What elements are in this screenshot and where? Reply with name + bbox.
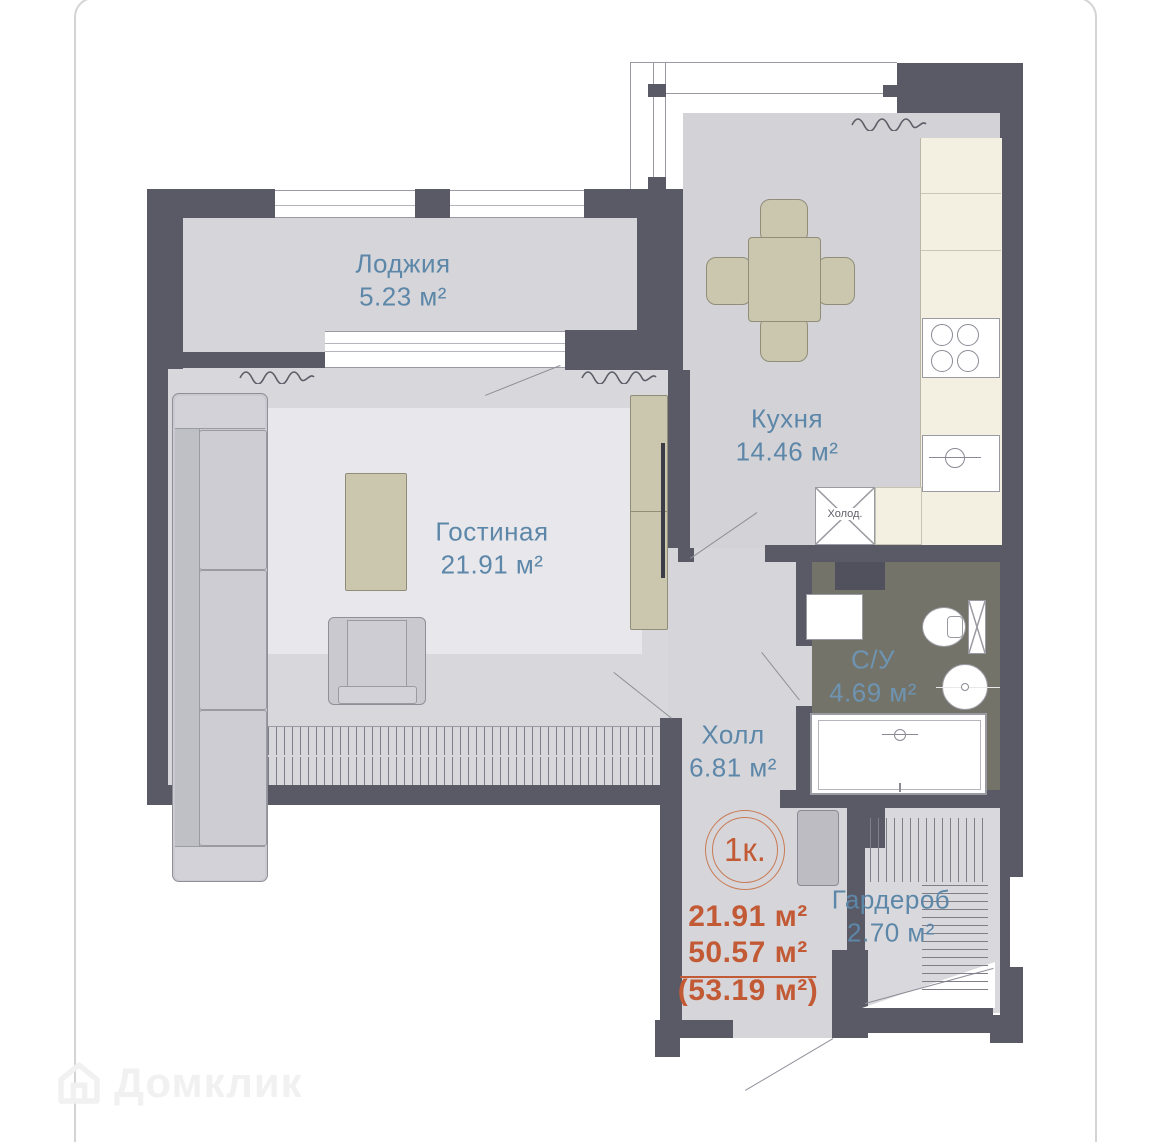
balcony-post [648, 84, 666, 97]
fridge: Холод. [815, 487, 875, 545]
wall-loggia-step [565, 330, 637, 370]
room-name: Гардероб [832, 884, 950, 917]
room-label-kitchen: Кухня 14.46 м² [736, 403, 839, 468]
bathtub [810, 713, 987, 795]
room-label-bathroom: С/У 4.69 м² [829, 644, 917, 709]
room-label-loggia: Лоджия 5.23 м² [355, 248, 450, 313]
washing-machine [806, 594, 863, 640]
faucet-icon [945, 448, 965, 468]
tv [661, 443, 665, 578]
toilet-seat-detail [947, 616, 963, 638]
wall-bottom-right-corner [990, 1015, 1023, 1043]
stove-burner [957, 324, 979, 346]
wall-loggia-bottom [147, 352, 325, 368]
sofa [172, 393, 268, 882]
wall-loggia-top-a [147, 189, 275, 218]
fridge-label: Холод. [825, 508, 865, 520]
counter-tile-line [921, 250, 1001, 251]
balcony-outline-mullion-b [665, 62, 666, 190]
wall-kitchen-bath-divider [765, 545, 1002, 562]
counter-tile-line [921, 193, 1001, 194]
apartment-type-badge: 1к. [705, 810, 785, 890]
toilet-tank [968, 600, 986, 654]
kitchen-sink [922, 435, 1000, 492]
room-label-wardrobe: Гардероб 2.70 м² [832, 884, 950, 949]
balcony-post [883, 85, 897, 97]
stove [922, 318, 1000, 378]
balcony-outline-top [630, 62, 897, 63]
kitchen-chair-right [817, 257, 855, 305]
wall-living-kitchen-divider [668, 370, 690, 548]
wall-right-notch [1010, 877, 1023, 967]
watermark-brand: Домклик [114, 1059, 303, 1107]
stove-burner [931, 350, 953, 372]
total-area: 50.57 м² [680, 936, 816, 978]
bathroom-sink-dot [961, 683, 969, 691]
floorplan-image: Холод. [0, 0, 1170, 1142]
armchair-seat [347, 620, 407, 690]
curtain-squiggle [850, 115, 928, 131]
kitchen-chair-left [706, 257, 752, 305]
stove-burner [957, 350, 979, 372]
bathtub-faucet [894, 729, 906, 741]
balcony-door-window [325, 331, 565, 368]
watermark: Домклик [52, 1056, 303, 1110]
wardrobe-hatch-vertical [870, 818, 988, 882]
room-label-hall: Холл 6.81 м² [689, 719, 777, 784]
room-area: 5.23 м² [355, 280, 450, 313]
faucet-line [929, 457, 981, 458]
room-name: Кухня [736, 403, 839, 436]
sofa-cushion [199, 430, 267, 570]
bath-vent-block [835, 562, 885, 590]
room-name: Холл [689, 719, 777, 752]
sofa-armrest [175, 396, 265, 429]
kitchen-table [748, 237, 821, 322]
wall-top-right [897, 63, 1023, 113]
total-area-with-loggia: (53.19 м²) [678, 974, 819, 1008]
curtain-squiggle [238, 368, 316, 384]
domclick-house-icon [52, 1056, 106, 1110]
kitchen-chair-bottom [760, 316, 808, 362]
toilet-bowl [922, 607, 966, 647]
loggia-window-a [275, 190, 415, 218]
stove-burner [931, 324, 953, 346]
room-name: Лоджия [355, 248, 450, 281]
curtain-squiggle [580, 368, 658, 384]
balcony-outline-left [630, 62, 631, 189]
wall-living-left [147, 369, 168, 805]
room-area: 6.81 м² [689, 751, 777, 784]
wall-entry-left [655, 1020, 733, 1038]
hall-cabinet [797, 810, 839, 886]
room-area: 21.91 м² [435, 548, 548, 581]
armchair [328, 617, 426, 705]
bathtub-drain [899, 783, 901, 792]
bathtub-faucet-line [882, 734, 918, 735]
sofa-cushion [199, 710, 267, 846]
sofa-cushion [199, 570, 267, 710]
sofa-back [175, 428, 200, 846]
room-area: 14.46 м² [736, 435, 839, 468]
balcony-outline-inner [665, 93, 897, 94]
room-area: 2.70 м² [832, 916, 950, 949]
wall-loggia-mullion [415, 189, 450, 218]
living-area-total: 21.91 м² [688, 900, 808, 934]
room-name: С/У [829, 644, 917, 677]
balcony-outline-mullion-a [653, 62, 654, 190]
wall-loggia-right [637, 218, 683, 370]
loggia-window-b [450, 190, 584, 218]
kitchen-counter-return [875, 487, 922, 545]
room-label-living: Гостиная 21.91 м² [435, 516, 548, 581]
wall-wardrobe-bottom [858, 1008, 993, 1033]
sofa-armrest [175, 846, 265, 880]
room-name: Гостиная [435, 516, 548, 549]
wall-divider-nub [678, 548, 694, 562]
wall-entry-tab [655, 1038, 680, 1057]
armchair-back [338, 686, 417, 704]
room-area: 4.69 м² [829, 676, 917, 709]
wall-loggia-top-b [584, 189, 683, 218]
coffee-table [345, 473, 407, 591]
